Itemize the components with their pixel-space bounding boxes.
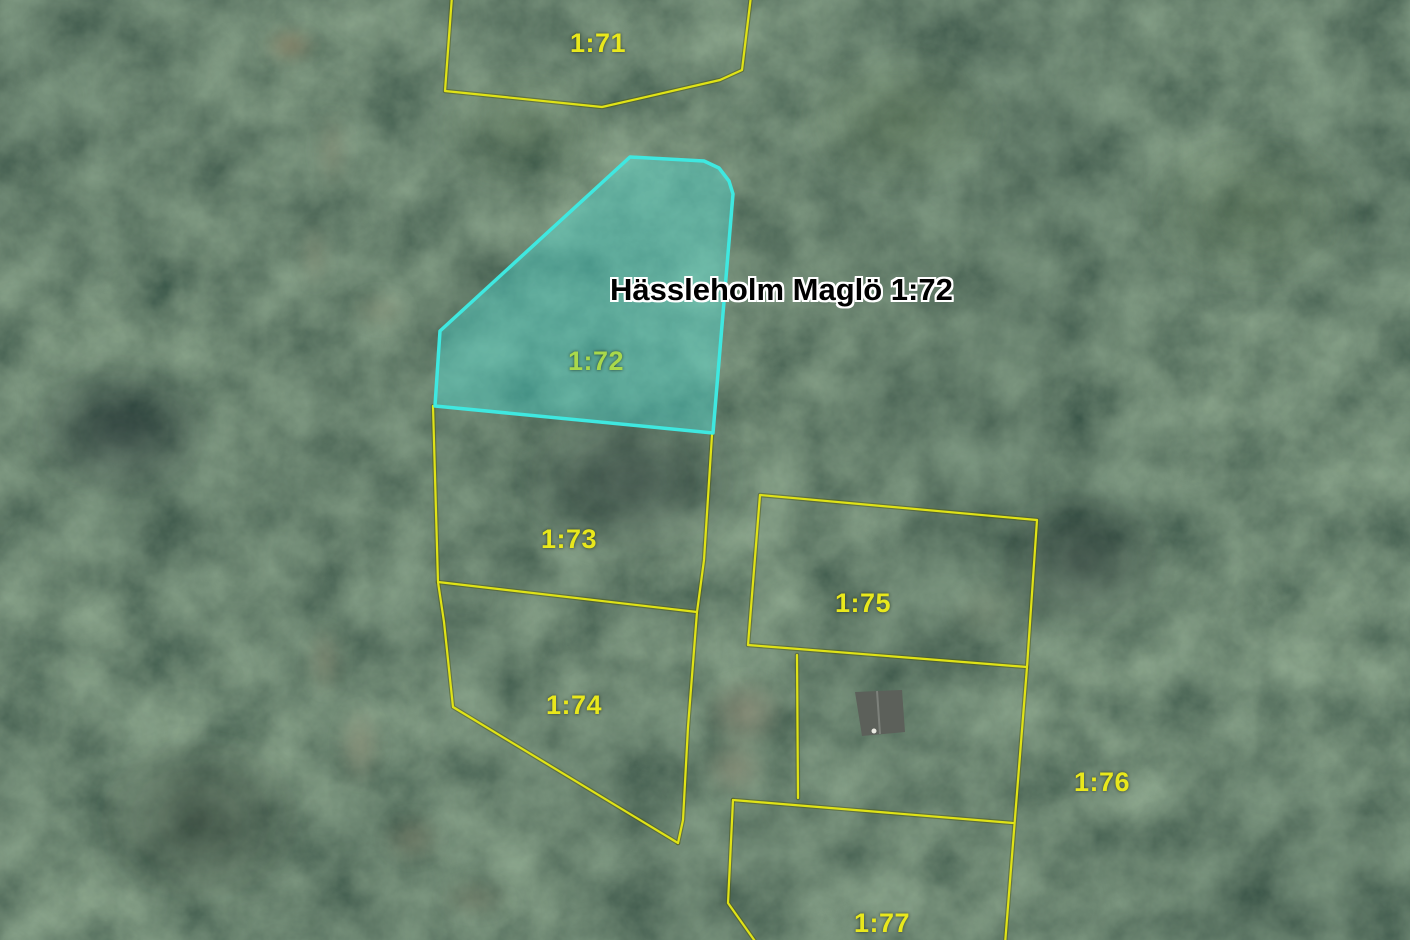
parcel-boundary-west-73-74 (433, 406, 678, 843)
parcel-boundary-1-75 (748, 495, 1037, 667)
parcel-boundary-halo-1-71 (445, 0, 751, 107)
parcel-boundary-divider-73-74 (438, 582, 697, 612)
building-detail-dot (872, 729, 877, 734)
parcel-boundary-halo-1-75 (748, 495, 1037, 667)
parcel-boundary-east-right (1005, 667, 1027, 940)
parcel-boundary-1-71 (445, 0, 751, 107)
parcel-boundary-branch-75-south (797, 655, 798, 798)
cadastral-overlay (0, 0, 1410, 940)
map-viewport[interactable]: Hässleholm Maglö 1:72 1:711:721:731:741:… (0, 0, 1410, 940)
parcel-boundary-south-house-lot (733, 800, 1013, 823)
parcel-boundary-west-1-77 (728, 800, 757, 940)
selected-parcel-polygon[interactable] (435, 157, 733, 433)
parcel-boundary-halo-west-73-74 (433, 406, 678, 843)
